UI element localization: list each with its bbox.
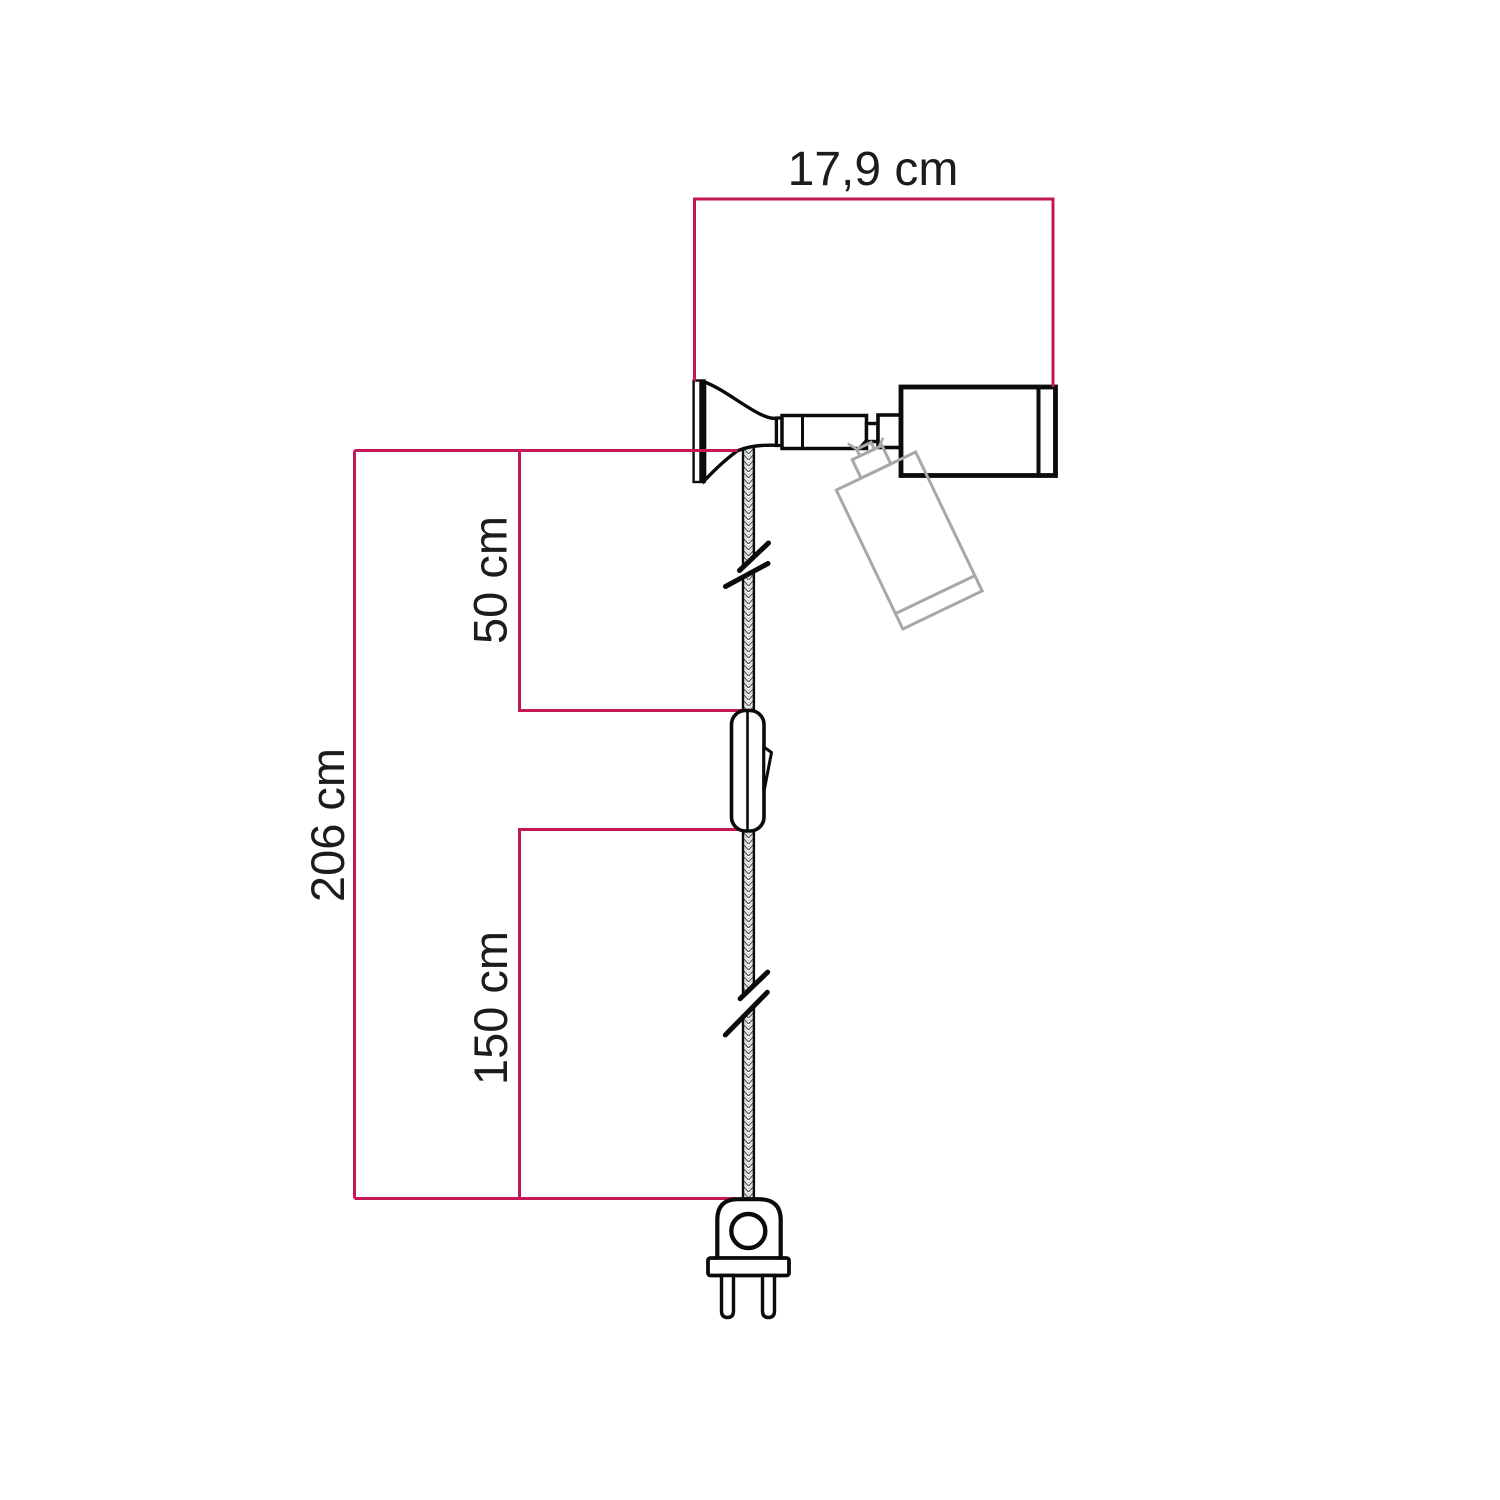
- svg-text:206 cm: 206 cm: [301, 748, 354, 902]
- svg-text:17,9 cm: 17,9 cm: [788, 143, 959, 196]
- svg-text:150 cm: 150 cm: [464, 931, 517, 1085]
- svg-text:50 cm: 50 cm: [464, 516, 517, 644]
